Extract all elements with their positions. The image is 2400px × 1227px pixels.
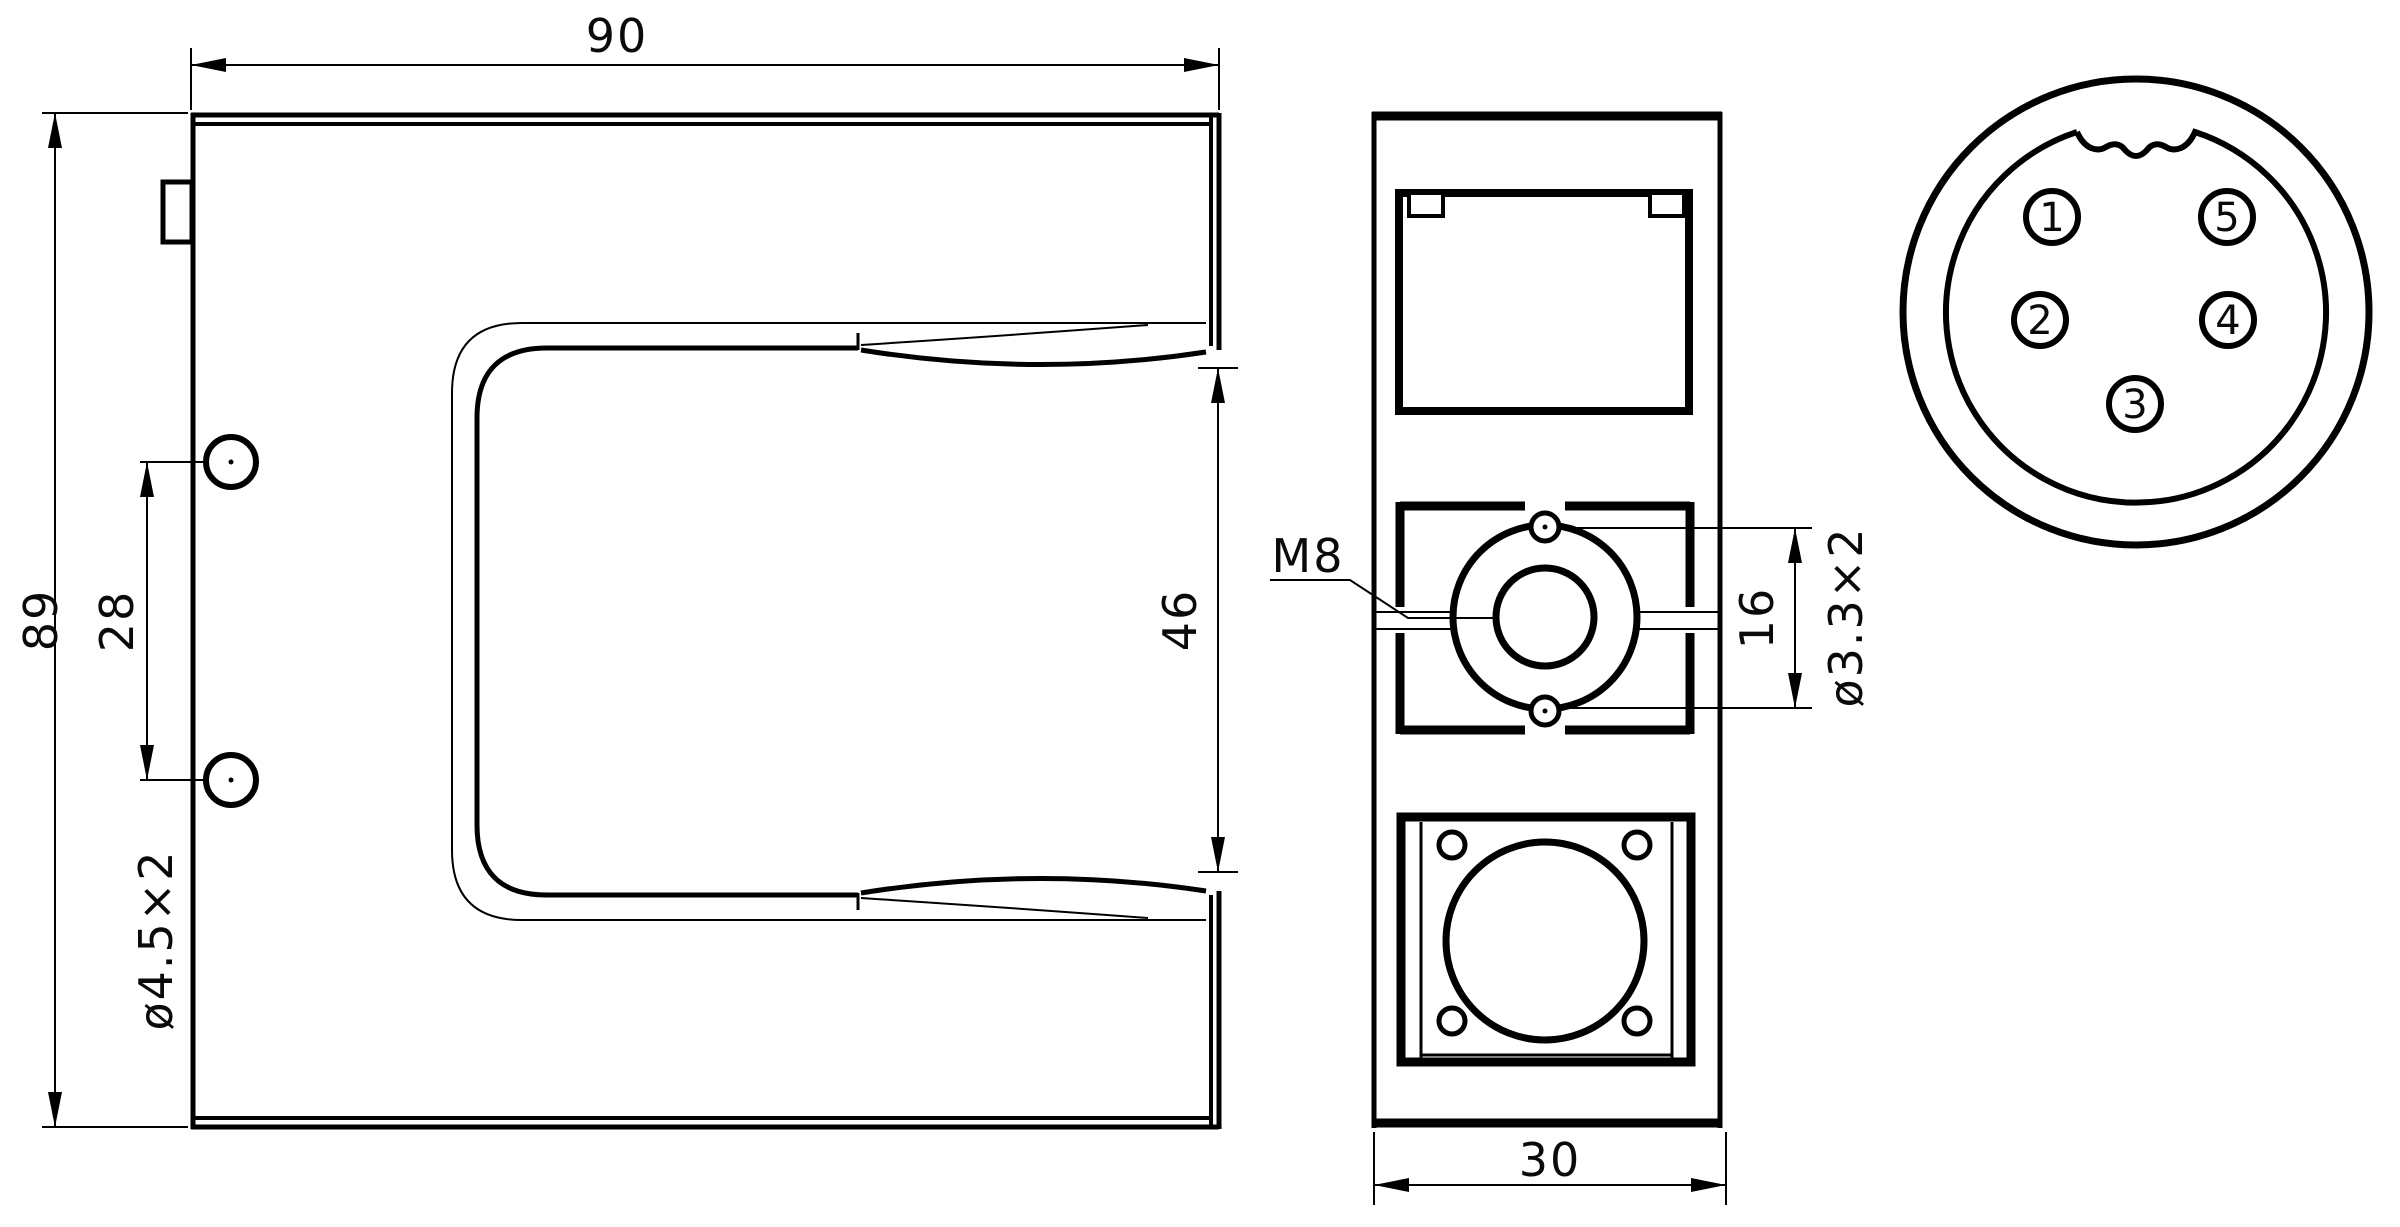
pin-3: 3	[2109, 378, 2161, 430]
flange-screw-tl	[1439, 832, 1465, 858]
pin-1-number: 1	[2039, 195, 2064, 241]
mounting-hole-bottom	[140, 755, 256, 805]
connector-barrel-circle	[1446, 842, 1644, 1040]
dim-text-16: 16	[1730, 587, 1784, 650]
lower-lens	[861, 878, 1206, 918]
dim-hole-spacing-28: 28	[90, 462, 154, 780]
window-corner-mark-left	[1409, 193, 1443, 216]
pin-hole-top	[1531, 513, 1559, 541]
flange-screw-tr	[1624, 832, 1650, 858]
dim-text-46: 46	[1153, 589, 1207, 652]
mounting-hole-top	[140, 437, 256, 487]
window-corner-mark-right	[1650, 193, 1684, 216]
pin-hole-bottom	[1531, 697, 1559, 725]
note-hole-size: ø4.5×2	[129, 849, 183, 1030]
upper-lens	[861, 325, 1206, 365]
dim-text-30: 30	[1519, 1133, 1582, 1187]
note-pin-hole-size: ø3.3×2	[1819, 526, 1873, 707]
pin-2: 2	[2014, 294, 2066, 346]
pin-5-number: 5	[2214, 195, 2239, 241]
flange-screw-bl	[1439, 1008, 1465, 1034]
connector-outer-ring	[1903, 79, 2369, 545]
dim-text-89: 89	[14, 589, 68, 652]
side-connector-flange	[1401, 817, 1691, 1062]
drawing-svg: 90 89 28 ø4.5×2 46 M8	[0, 0, 2400, 1227]
side-window	[1399, 193, 1689, 411]
dim-width-30: 30	[1374, 1132, 1726, 1205]
mounting-tab	[163, 182, 192, 242]
dim-width-90: 90	[191, 9, 1219, 110]
connector-pinout: 1 2 3 4 5	[1903, 79, 2369, 545]
pin-3-number: 3	[2122, 382, 2147, 428]
front-view	[140, 113, 1219, 1129]
dim-text-90: 90	[586, 9, 649, 63]
connector-inner-ring	[1946, 132, 2326, 503]
pin-4-number: 4	[2215, 298, 2240, 344]
m8-thread-hole	[1496, 568, 1594, 666]
engineering-drawing: 90 89 28 ø4.5×2 46 M8	[0, 0, 2400, 1227]
pin-5: 5	[2201, 191, 2253, 243]
flange-screw-br	[1624, 1008, 1650, 1034]
pin-1: 1	[2026, 191, 2078, 243]
front-body-outline	[191, 113, 1219, 1129]
dim-slot-46: 46	[1153, 368, 1238, 872]
slot-contour	[452, 323, 1206, 920]
dim-text-28: 28	[90, 590, 144, 653]
pin-2-number: 2	[2027, 298, 2052, 344]
side-view	[1372, 112, 1722, 1128]
pin-4: 4	[2202, 294, 2254, 346]
label-m8-text: M8	[1272, 529, 1345, 583]
